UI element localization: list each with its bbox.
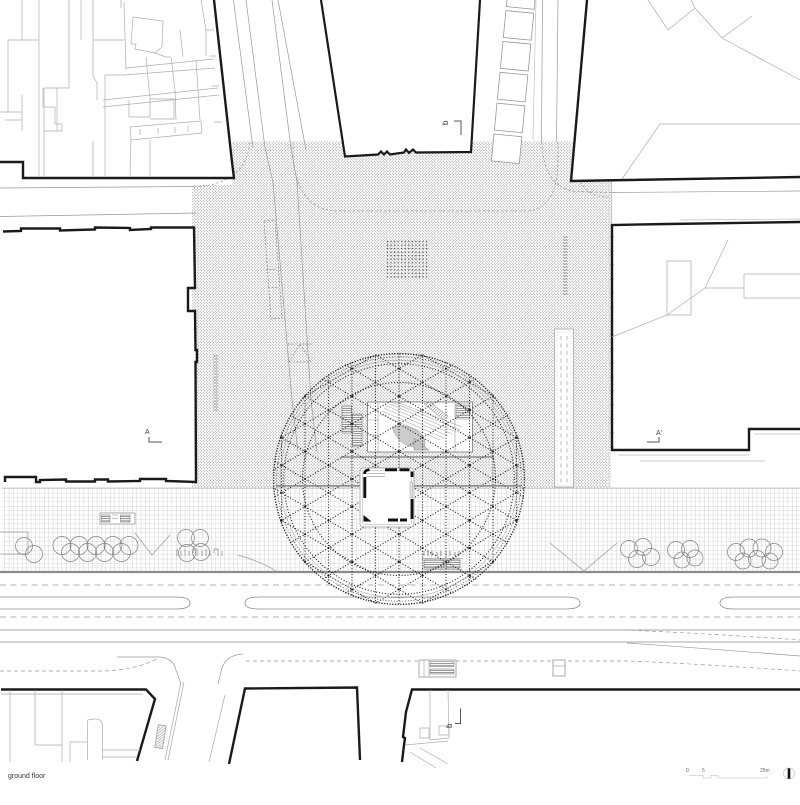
svg-text:b: b <box>441 120 450 125</box>
svg-text:A': A' <box>656 430 662 437</box>
svg-text:25m: 25m <box>760 768 770 774</box>
svg-text:ground floor: ground floor <box>8 773 46 780</box>
svg-text:5: 5 <box>702 768 705 774</box>
svg-text:b: b <box>445 723 454 728</box>
svg-text:0: 0 <box>686 768 689 774</box>
svg-text:A: A <box>145 429 150 436</box>
